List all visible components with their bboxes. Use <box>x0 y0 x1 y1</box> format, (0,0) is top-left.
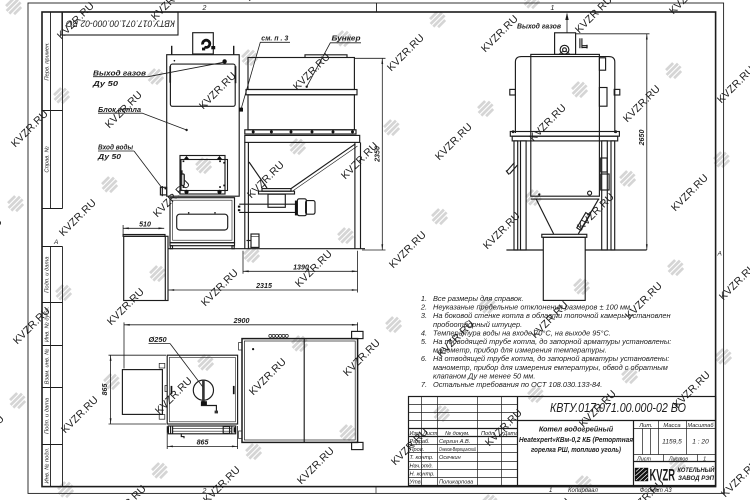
svg-text:Heatexpert«КВм-0,2 КБ (Ретортн: Heatexpert«КВм-0,2 КБ (Ретортная <box>519 435 634 444</box>
svg-text:Перв. примен.: Перв. примен. <box>45 42 51 81</box>
svg-text:Лист: Лист <box>422 431 438 437</box>
svg-text:Взам. инв. №: Взам. инв. № <box>45 349 51 385</box>
svg-text:Изм.: Изм. <box>410 431 422 437</box>
svg-text:3.: 3. <box>421 311 427 320</box>
svg-text:Выход газов: Выход газов <box>517 21 561 30</box>
svg-text:2: 2 <box>202 5 207 12</box>
svg-text:№ докум.: № докум. <box>445 431 470 437</box>
svg-text:1 : 20: 1 : 20 <box>692 439 709 446</box>
svg-text:Лит.: Лит. <box>638 423 653 429</box>
svg-text:Нач.отд.: Нач.отд. <box>410 463 434 469</box>
svg-text:А: А <box>53 239 58 246</box>
svg-text:Блок котла: Блок котла <box>98 105 141 114</box>
svg-text:Инв. № подл.: Инв. № подл. <box>45 448 51 484</box>
svg-text:Н. контр.: Н. контр. <box>410 472 435 478</box>
svg-text:Котел водогрейный: Котел водогрейный <box>539 425 614 434</box>
svg-text:Бункер: Бункер <box>332 34 361 43</box>
svg-text:Масштаб: Масштаб <box>688 423 715 429</box>
svg-text:KVZR: KVZR <box>650 466 676 485</box>
svg-text:2: 2 <box>202 488 207 495</box>
svg-text:КОТЕЛЬНЫЙ: КОТЕЛЬНЫЙ <box>677 465 714 474</box>
svg-text:1: 1 <box>703 456 706 462</box>
svg-text:см. п . 3: см. п . 3 <box>261 33 289 42</box>
svg-text:Подп. и дата: Подп. и дата <box>45 397 51 434</box>
svg-text:865: 865 <box>197 439 210 447</box>
svg-text:Листов: Листов <box>668 456 688 462</box>
svg-text:Формат А3: Формат А3 <box>640 488 673 494</box>
svg-text:Остальные требования по ОСТ 10: Остальные требования по ОСТ 108.030.133-… <box>433 380 602 389</box>
svg-text:1: 1 <box>551 5 555 12</box>
svg-text:Дата: Дата <box>503 431 519 437</box>
svg-text:Т. контр.: Т. контр. <box>410 455 434 461</box>
svg-text:Инв. № дубл.: Инв. № дубл. <box>45 306 51 342</box>
svg-text:Масса: Масса <box>663 423 681 429</box>
svg-text:ЗАВОД РЭП: ЗАВОД РЭП <box>678 475 714 482</box>
svg-text:Ø250: Ø250 <box>149 335 168 344</box>
svg-text:Выход газов: Выход газов <box>93 68 146 77</box>
svg-text:7.: 7. <box>421 380 427 389</box>
svg-text:КВТУ.017.071.00.000-02 ВО: КВТУ.017.071.00.000-02 ВО <box>66 19 175 29</box>
svg-text:2315: 2315 <box>255 282 273 290</box>
svg-text:1390: 1390 <box>293 264 309 272</box>
svg-text:Ду 50: Ду 50 <box>92 79 119 88</box>
svg-text:Онегов-Верещинский: Онегов-Верещинский <box>439 446 476 453</box>
svg-text:510: 510 <box>139 220 151 228</box>
svg-text:1159,5: 1159,5 <box>662 439 682 446</box>
svg-text:Копировал: Копировал <box>568 488 598 494</box>
svg-text:КВТУ.017.071.00.000-02 ВО: КВТУ.017.071.00.000-02 ВО <box>550 400 686 415</box>
svg-text:1: 1 <box>549 488 552 494</box>
svg-text:2650: 2650 <box>638 130 646 147</box>
svg-text:Сергин А.В.: Сергин А.В. <box>439 439 470 445</box>
svg-text:2350: 2350 <box>373 146 381 163</box>
svg-text:Осечкин: Осечкин <box>439 455 461 461</box>
svg-text:А: А <box>717 251 722 258</box>
svg-text:Подп. и дата: Подп. и дата <box>45 256 51 293</box>
svg-text:Справ. №: Справ. № <box>45 146 51 172</box>
svg-text:2900: 2900 <box>233 317 250 325</box>
svg-text:6.: 6. <box>421 354 427 363</box>
svg-text:Вход воды: Вход воды <box>98 143 133 152</box>
svg-text:865: 865 <box>101 383 109 396</box>
svg-text:Поликарпова: Поликарпова <box>439 480 473 486</box>
svg-text:Подп.: Подп. <box>481 431 496 437</box>
svg-text:горелка РШ, топливо уголь): горелка РШ, топливо уголь) <box>531 445 622 454</box>
svg-text:Разраб.: Разраб. <box>410 439 430 445</box>
svg-text:Ду 50: Ду 50 <box>97 152 122 161</box>
svg-text:Пров.: Пров. <box>410 447 425 453</box>
svg-text:Утв.: Утв. <box>409 480 423 486</box>
svg-text:5.: 5. <box>421 337 427 346</box>
svg-text:Лист: Лист <box>636 456 651 462</box>
